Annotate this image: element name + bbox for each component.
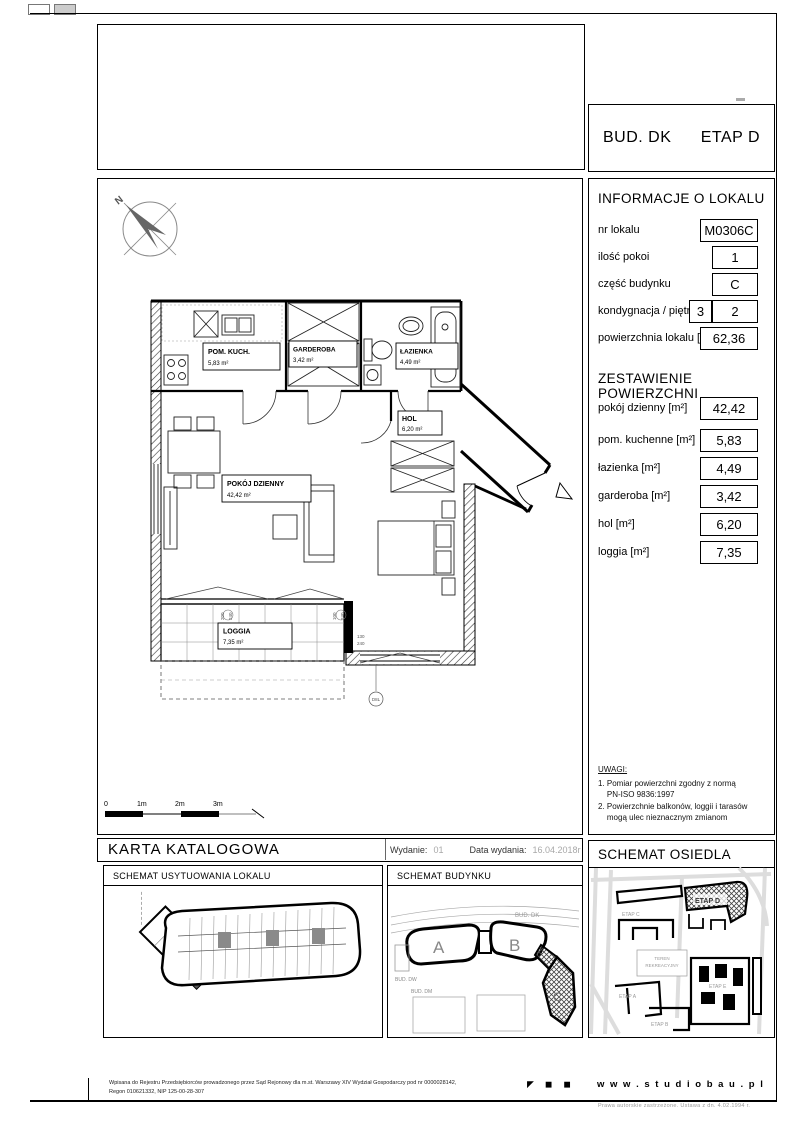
svg-text:HOL: HOL [402,416,418,423]
svg-text:LOGGIA: LOGGIA [223,629,251,636]
floorplan-drawing: N [98,179,581,833]
estate-schema-title: SCHEMAT OSIEDLA [589,841,774,868]
svg-text:0: 0 [104,801,108,808]
registry-line-1: Wpisana do Rejestru Przedsiębiorców prow… [109,1079,529,1088]
svg-text:200: 200 [220,612,225,620]
building-label-a: A [433,938,445,957]
svg-text:5,83 m²: 5,83 m² [208,361,228,367]
svg-text:D8L: D8L [372,697,381,702]
info-title: INFORMACJE O LOKALU [598,191,765,206]
compass-north-label: N [113,194,125,207]
website-text: w w w . s t u d i o b a u . p l [597,1079,764,1090]
field-value-rooms: 1 [712,246,758,269]
catalog-edition-block: Wydanie: 01 Data wydania: 16.04.2018r [390,839,581,860]
date-label: Data wydania: [469,845,526,855]
building-label-b: B [509,936,520,955]
compass-rose: N [113,194,177,256]
area-label-wardrobe: garderoba [m²] [598,485,670,508]
field-label-unit-area: powierzchnia lokalu [m²] [598,327,716,350]
catalog-bar: KARTA KATALOGOWA Wydanie: 01 Data wydani… [97,838,583,862]
area-label-living: pokój dzienny [m²] [598,397,687,420]
notes-title: UWAGI: [598,764,768,776]
svg-text:3,42 m²: 3,42 m² [293,358,313,364]
field-value-floor: 2 [712,300,758,323]
room-labels: POM. KUCH. 5,83 m² GARDEROBA 3,42 m² ŁAZ… [203,341,458,649]
field-label-storey: kondygnacja / piętro [598,300,696,323]
area-value-bath: 4,49 [700,457,758,480]
svg-text:100: 100 [332,612,337,620]
area-label-kitchen: pom. kuchenne [m²] [598,429,695,452]
floorplan-box: N [97,178,583,835]
logo-box [97,24,585,170]
building-schema-panel: SCHEMAT BUDYNKU BUD. DK A B C BUD. DW BU… [387,865,583,1038]
svg-text:POM. KUCH.: POM. KUCH. [208,349,250,356]
copyright-text: Prawa autorskie zastrzeżone. Ustawa z dn… [598,1103,750,1109]
frame-right-line [776,13,777,1101]
loggia-floor [161,604,346,699]
estate-label-etap-a: ETAP A [619,994,637,1000]
room-label-loggia: LOGGIA 7,35 m² [218,623,292,649]
area-label-hall: hol [m²] [598,513,635,536]
edition-value: 01 [433,845,443,855]
room-label-bath: ŁAZIENKA 4,49 m² [396,343,458,369]
building-label: BUD. DK [603,129,671,147]
info-panel: INFORMACJE O LOKALU nr lokalu M0306C ilo… [588,178,775,835]
building-schema-drawing: BUD. DK A B C BUD. DW BUD. DM [389,887,581,1037]
svg-text:3m: 3m [213,801,223,808]
estate-label-etap-d: ETAP D [695,898,720,905]
catalog-sheet: BUD. DK ETAP D N [0,0,793,1123]
estate-label-etap-c: ETAP C [622,912,640,918]
estate-label-etap-b: ETAP B [651,1022,669,1028]
estate-label-teren-1: TEREN [654,956,669,961]
stage-label: ETAP D [701,129,760,147]
building-label-bud-dm: BUD. DM [411,989,432,995]
area-value-wardrobe: 3,42 [700,485,758,508]
location-schema-title: SCHEMAT USYTUOWANIA LOKALU [104,866,382,886]
logo-glyph-icon: ◼ [545,1079,552,1090]
building-schema-title: SCHEMAT BUDYNKU [388,866,582,886]
svg-text:7,35 m²: 7,35 m² [223,640,243,646]
location-schema-panel: SCHEMAT USYTUOWANIA LOKALU [103,865,383,1038]
area-label-loggia: loggia [m²] [598,541,649,564]
svg-text:42,42 m²: 42,42 m² [227,493,251,499]
catalog-divider [385,839,386,860]
estate-label-etap-e: ETAP E [709,984,727,990]
field-value-unit-area: 62,36 [700,327,758,350]
field-label-building-part: część budynku [598,273,671,296]
date-value: 16.04.2018r [533,845,581,855]
field-value-unit-number: M0306C [700,219,758,242]
frame-top-line [30,13,776,14]
scale-bar: 0 1m 2m 3m [104,801,264,818]
building-stage-box: BUD. DK ETAP D [588,104,775,172]
svg-text:6,20 m²: 6,20 m² [402,427,422,433]
svg-text:240: 240 [357,641,365,646]
note-2: 2. Powierzchnie balkonów, loggii i taras… [598,801,768,824]
building-label-c: C [553,990,562,1004]
field-label-unit-number: nr lokalu [598,219,640,242]
svg-text:1m: 1m [137,801,147,808]
frame-bottom-line [30,1100,777,1102]
field-value-building-part: C [712,273,758,296]
registry-line-2: Regon 010621332, NIP 125-00-28-307 [109,1088,529,1097]
svg-text:130: 130 [357,634,365,639]
registration-dash [736,98,745,101]
catalog-title: KARTA KATALOGOWA [108,839,280,860]
room-label-hall: HOL 6,20 m² [398,411,442,435]
svg-text:POKÓJ DZIENNY: POKÓJ DZIENNY [227,479,285,488]
estate-label-teren-2: REKREACYJNY [645,963,678,968]
building-label-bud-dw: BUD. DW [395,977,417,983]
building-label-bud-dk: BUD. DK [515,913,539,919]
svg-text:240: 240 [228,612,233,620]
studiobau-logo: ◤ ◼ ◼ [527,1079,571,1090]
logo-glyph-icon: ◤ [527,1079,534,1090]
room-label-kitchen: POM. KUCH. 5,83 m² [203,343,280,370]
field-value-storey: 3 [689,300,712,323]
svg-text:240: 240 [340,612,345,620]
svg-text:GARDEROBA: GARDEROBA [293,347,336,354]
area-value-living: 42,42 [700,397,758,420]
svg-text:ŁAZIENKA: ŁAZIENKA [400,349,433,356]
room-label-living: POKÓJ DZIENNY 42,42 m² [222,475,311,502]
estate-schema-panel: SCHEMAT OSIEDLA ETAP C TEREN REKREACYJNY [588,840,775,1038]
area-value-kitchen: 5,83 [700,429,758,452]
field-label-rooms: ilość pokoi [598,246,649,269]
edition-label: Wydanie: [390,845,427,855]
area-value-loggia: 7,35 [700,541,758,564]
area-value-hall: 6,20 [700,513,758,536]
estate-schema-drawing: ETAP C TEREN REKREACYJNY ETAP A ETAP B E… [589,866,773,1036]
frame-left-tick [88,1078,89,1101]
notes-block: UWAGI: 1. Pomiar powierzchni zgodny z no… [598,764,768,824]
note-1: 1. Pomiar powierzchni zgodny z normą PN-… [598,778,768,801]
area-label-bath: łazienka [m²] [598,457,660,480]
logo-glyph-icon: ◼ [563,1079,570,1090]
room-label-wardrobe: GARDEROBA 3,42 m² [289,341,357,367]
svg-text:2m: 2m [175,801,185,808]
svg-text:4,49 m²: 4,49 m² [400,360,420,366]
registry-text: Wpisana do Rejestru Przedsiębiorców prow… [109,1079,529,1097]
location-schema-drawing [106,888,380,1036]
